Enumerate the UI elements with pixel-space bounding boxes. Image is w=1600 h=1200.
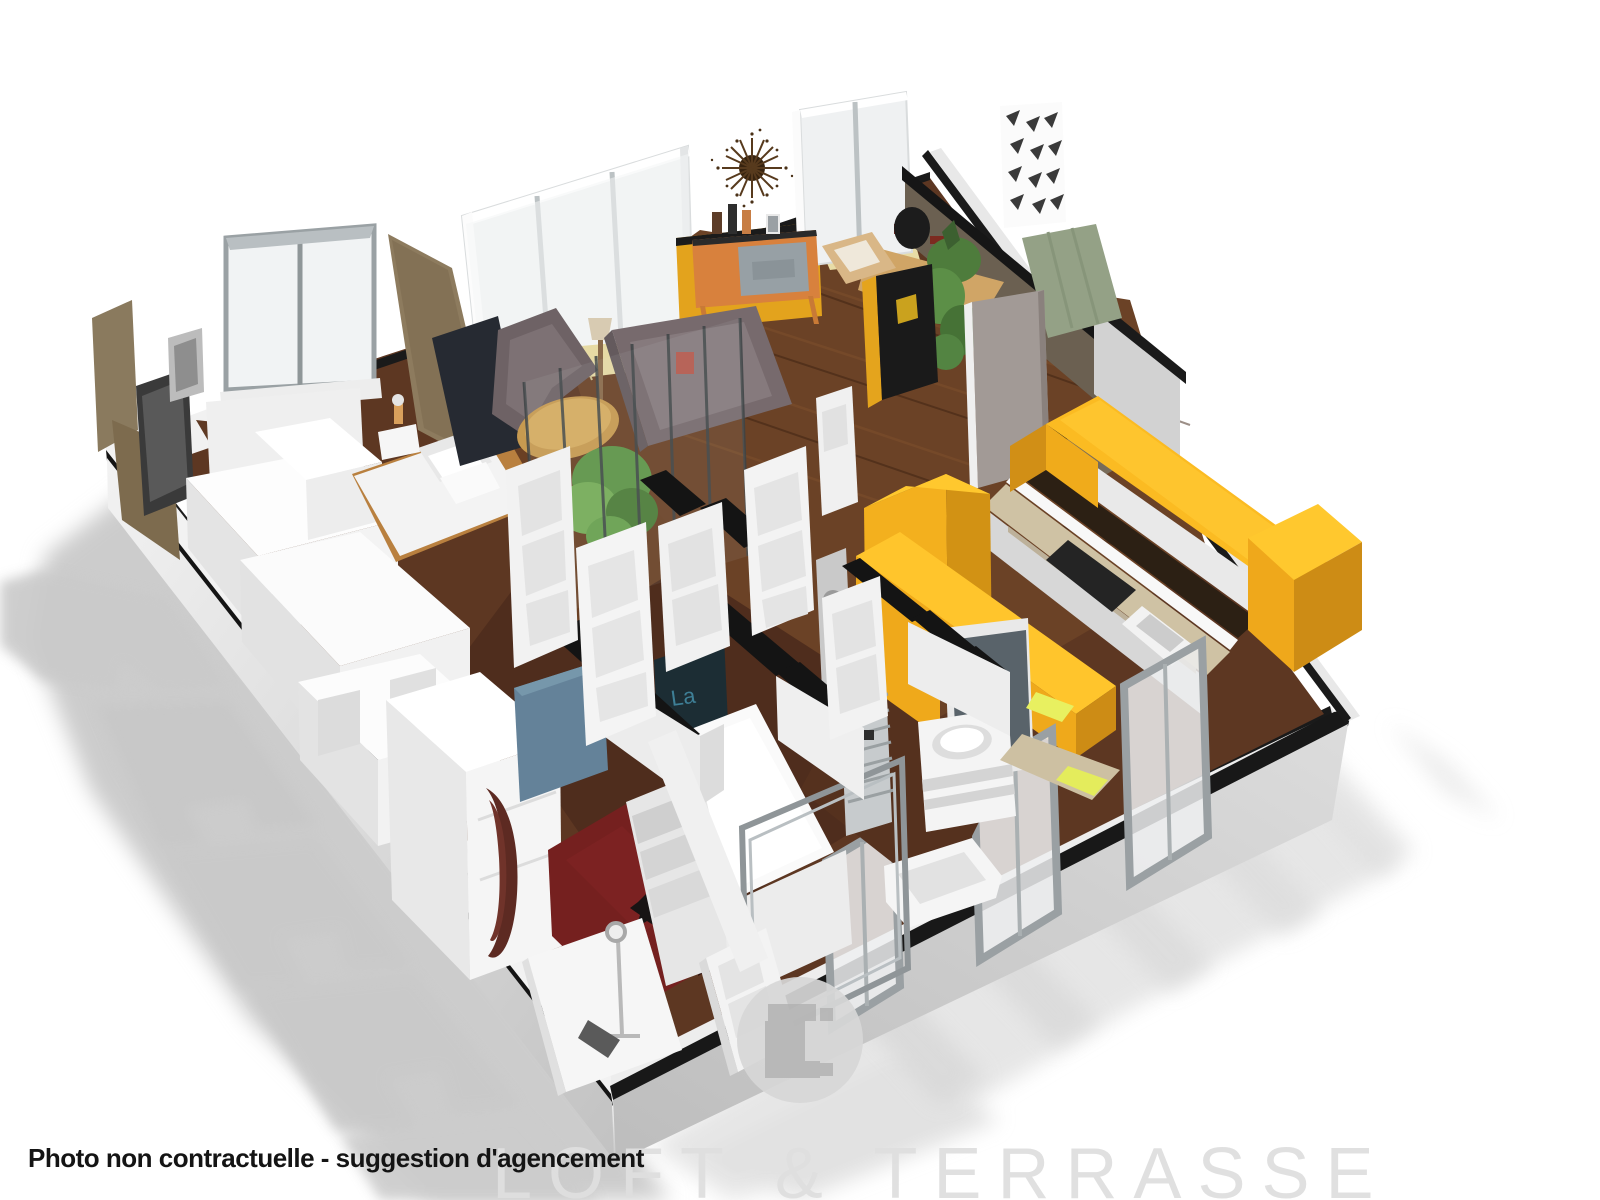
svg-text:Photo non contractuelle - sugg: Photo non contractuelle - suggestion d'a… (28, 1143, 645, 1173)
svg-text:La: La (669, 683, 697, 711)
